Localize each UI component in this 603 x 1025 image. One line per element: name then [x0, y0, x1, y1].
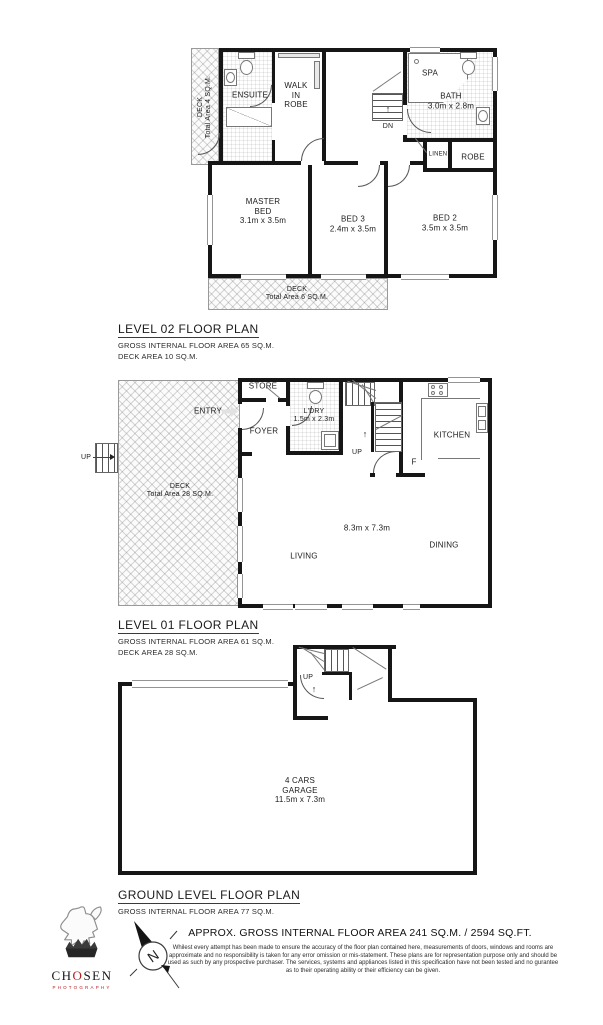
stair-break-line	[373, 71, 401, 91]
wall-segment	[219, 48, 223, 165]
bed2-label: BED 2 3.5m x 3.5m	[422, 214, 468, 233]
window-segment	[321, 274, 366, 280]
disclaimer-line: used as such by any prospective purchase…	[148, 960, 578, 968]
stair-direction-arrow: ↑	[386, 104, 391, 114]
disclaimer-line: Whilest every attempt has been made to e…	[148, 945, 578, 953]
window-segment	[241, 274, 286, 280]
wall-segment	[272, 48, 275, 103]
door-arc	[388, 165, 410, 187]
stair-break-line	[357, 677, 383, 690]
level1-deck-label: DECK Total Area 28 SQ.M.	[147, 483, 213, 499]
wall-segment	[370, 473, 375, 477]
disclaimer-line: approximate and no responsibility is tak…	[148, 953, 578, 961]
shower-icon	[226, 107, 272, 127]
dn-label: DN	[383, 123, 394, 131]
door-arc	[301, 138, 324, 161]
wall-segment	[242, 398, 266, 402]
kitchen-label: KITCHEN	[434, 430, 471, 440]
wall-segment	[208, 161, 301, 165]
stove-burner	[431, 391, 435, 395]
dining-label: DINING	[429, 540, 458, 550]
stair-direction-arrow: ↑	[363, 429, 368, 439]
level2-area-line1: GROSS INTERNAL FLOOR AREA 65 SQ.M.	[118, 341, 274, 352]
side-up-label: UP	[81, 454, 91, 462]
robe-rail	[278, 53, 320, 58]
chosen-lion-icon	[53, 905, 111, 963]
window-segment	[237, 574, 243, 598]
window-segment	[263, 604, 293, 610]
bath-label: BATH 3.0m x 2.8m	[428, 92, 474, 111]
side-up-arrowhead	[110, 454, 115, 460]
garage-label: 4 CARS GARAGE 11.5m x 7.3m	[275, 776, 325, 805]
stove-burner	[439, 385, 443, 389]
counter-line	[438, 458, 480, 459]
wall-segment	[423, 168, 497, 172]
window-segment	[237, 478, 243, 512]
store-label: STORE	[249, 381, 277, 391]
master-bed-label: MASTER BED 3.1m x 3.5m	[240, 197, 286, 226]
counter-line	[421, 398, 422, 460]
foyer-label: FOYER	[250, 426, 279, 436]
bed3-label: BED 3 2.4m x 3.5m	[330, 215, 376, 234]
dimensions-label: 8.3m x 7.3m	[344, 523, 390, 533]
window-segment	[237, 526, 243, 562]
ensuite-label: ENSUITE	[232, 90, 268, 100]
ground-area-line1: GROSS INTERNAL FLOOR AREA 77 SQ.M.	[118, 907, 300, 918]
wall-segment	[349, 672, 352, 700]
window-segment	[492, 57, 498, 91]
wall-segment	[293, 716, 328, 720]
window-segment	[410, 47, 440, 53]
wall-segment	[388, 645, 392, 702]
wall-segment	[371, 402, 374, 452]
level2-title: LEVEL 02 FLOOR PLAN	[118, 322, 259, 338]
floorplan-page: DECK Total Area 4 SQ.M. DECK Total Area …	[0, 0, 603, 1025]
walk-in-robe-label: WALK IN ROBE	[284, 81, 307, 110]
wall-segment	[403, 48, 407, 105]
window-segment	[295, 604, 327, 610]
side-up-arrow-line	[93, 457, 111, 458]
fridge-label: F	[411, 457, 416, 467]
stair-direction-arrow: ↑	[312, 684, 317, 694]
window-segment	[403, 604, 420, 610]
door-arc	[358, 165, 380, 187]
wall-segment	[240, 452, 252, 456]
window-segment	[342, 604, 373, 610]
spa-label: SPA	[422, 68, 438, 78]
robe-label: ROBE	[461, 152, 484, 162]
wall-segment	[324, 161, 358, 165]
wall-segment	[286, 451, 343, 455]
garage-door	[132, 680, 288, 688]
level2-bottom-deck-label: DECK Total Area 6 SQ.M.	[266, 286, 328, 302]
level-01-plan: DECK Total Area 28 SQ.M.	[118, 378, 497, 612]
window-segment	[492, 195, 498, 240]
living-label: LIVING	[290, 551, 317, 561]
robe-rail	[314, 61, 320, 89]
wall-segment	[322, 672, 352, 675]
stairs-treads	[324, 649, 349, 672]
ground-title-block: GROUND LEVEL FLOOR PLAN GROSS INTERNAL F…	[118, 886, 300, 918]
stove-burner	[439, 391, 443, 395]
approx-area-text: APPROX. GROSS INTERNAL FLOOR AREA 241 SQ…	[150, 927, 570, 939]
wall-segment	[118, 682, 122, 875]
up-label: UP	[352, 449, 362, 457]
ground-up-label: UP	[303, 674, 313, 682]
wall-segment	[288, 682, 297, 686]
ldry-label: L'DRY 1.5m x 2.3m	[294, 408, 335, 424]
level2-title-block: LEVEL 02 FLOOR PLAN GROSS INTERNAL FLOOR…	[118, 320, 274, 362]
chosen-logo: CHOSEN PHOTOGRAPHY	[46, 905, 118, 990]
wall-segment	[339, 378, 343, 455]
logo-wordmark: CHOSEN	[46, 968, 118, 984]
counter-line	[422, 398, 480, 399]
disclaimer: Whilest every attempt has been made to e…	[148, 945, 578, 975]
wall-segment	[488, 378, 492, 608]
wall-segment	[118, 871, 477, 875]
wall-segment	[286, 378, 290, 406]
window-segment	[448, 377, 480, 383]
level-02-plan: DECK Total Area 4 SQ.M. DECK Total Area …	[186, 45, 501, 313]
door-arc	[373, 451, 396, 473]
entry-label: ENTRY	[194, 406, 222, 416]
wall-segment	[473, 698, 477, 875]
wall-segment	[219, 48, 497, 52]
spa-jet-icon	[414, 59, 419, 64]
window-segment	[207, 195, 213, 245]
window-segment	[401, 274, 449, 280]
stair-diagonal-line	[352, 647, 386, 670]
linen-label: LINEN	[429, 152, 448, 159]
ground-level-plan: ↑ UP 4 CARS GARAGE 11.5m x 7.3m	[118, 645, 480, 879]
logo-accent-letter: O	[73, 968, 84, 983]
logo-tagline: PHOTOGRAPHY	[46, 985, 118, 990]
wall-segment	[308, 165, 312, 278]
stove-burner	[431, 385, 435, 389]
wall-segment	[388, 698, 477, 702]
wall-segment	[396, 473, 425, 477]
ground-title: GROUND LEVEL FLOOR PLAN	[118, 888, 300, 904]
level1-title: LEVEL 01 FLOOR PLAN	[118, 618, 259, 634]
wall-segment	[410, 161, 423, 165]
disclaimer-line: as to their operating ability or their e…	[148, 968, 578, 976]
level2-area-line2: DECK AREA 10 SQ.M.	[118, 352, 274, 363]
